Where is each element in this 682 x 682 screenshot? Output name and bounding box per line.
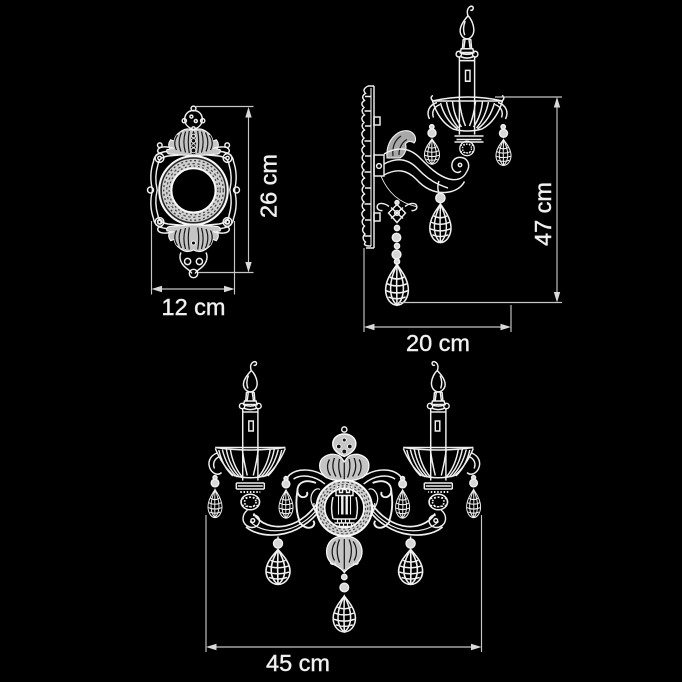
- svg-text:20 cm: 20 cm: [406, 330, 470, 356]
- svg-text:26 cm: 26 cm: [256, 154, 282, 218]
- svg-text:45 cm: 45 cm: [266, 650, 330, 676]
- svg-text:47 cm: 47 cm: [530, 182, 556, 246]
- svg-text:12 cm: 12 cm: [162, 294, 226, 320]
